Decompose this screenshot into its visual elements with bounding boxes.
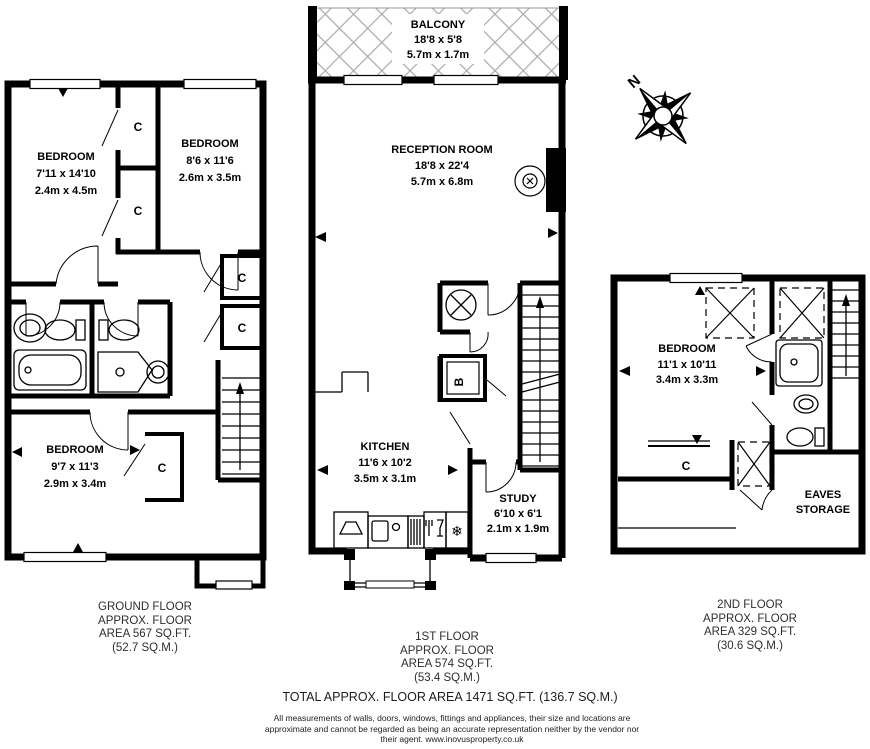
- chimney-breast: [546, 148, 566, 212]
- ground-bedroom-mid-imperial: 8'6 x 11'6: [186, 155, 233, 167]
- ground-bedroom-mid-metric: 2.6m x 3.5m: [179, 172, 242, 184]
- compass-rose: N: [601, 52, 713, 166]
- eaves-storage-line2: STORAGE: [796, 504, 850, 516]
- disclaimer-line1: All measurements of walls, doors, window…: [152, 713, 752, 724]
- skylights: [706, 288, 824, 486]
- ground-closet-2: C: [134, 204, 143, 218]
- ground-closet-3: C: [238, 271, 247, 285]
- second-closet: C: [682, 459, 691, 473]
- first-floor-plan: ❄ BALCONY 18'8 x 5'8 5.7m x 1.7m RECEPTI…: [308, 6, 568, 590]
- first-floor-area-line1: 1ST FLOOR: [347, 631, 547, 645]
- reception-metric: 5.7m x 6.8m: [411, 176, 474, 188]
- balcony-metric: 5.7m x 1.7m: [407, 49, 470, 61]
- second-bedroom-imperial: 11'1 x 10'11: [657, 359, 716, 371]
- kitchen-appliances: [334, 512, 468, 548]
- reception-name: RECEPTION ROOM: [391, 144, 492, 156]
- eaves-storage-line1: EAVES: [805, 489, 841, 501]
- second-window: [670, 274, 742, 283]
- kitchen-metric: 3.5m x 3.1m: [354, 473, 417, 485]
- second-doors: [740, 334, 772, 510]
- ground-closet-1: C: [134, 120, 143, 134]
- balcony-imperial: 18'8 x 5'8: [414, 34, 462, 46]
- ground-closet-5: C: [158, 461, 167, 475]
- wc-symbol: [446, 290, 476, 320]
- second-floor-area-line2: APPROX. FLOOR: [650, 613, 850, 627]
- ground-floor-area-line3: AREA 567 SQ.FT.: [45, 628, 245, 642]
- ground-room-labels: BEDROOM 7'11 x 14'10 2.4m x 4.5m BEDROOM…: [35, 120, 247, 490]
- floorplan-page: BEDROOM 7'11 x 14'10 2.4m x 4.5m BEDROOM…: [0, 0, 870, 749]
- ground-floor-plan: BEDROOM 7'11 x 14'10 2.4m x 4.5m BEDROOM…: [8, 80, 263, 590]
- study-name: STUDY: [499, 493, 537, 505]
- disclaimer-line3: their agent. www.inovusproperty.co.uk: [152, 734, 752, 745]
- second-floor-area-line3: AREA 329 SQ.FT.: [650, 626, 850, 640]
- ground-floor-area-label: GROUND FLOOR APPROX. FLOOR AREA 567 SQ.F…: [45, 601, 245, 655]
- kitchen-imperial: 11'6 x 10'2: [358, 457, 412, 469]
- study-imperial: 6'10 x 6'1: [494, 508, 542, 520]
- reception-imperial: 18'8 x 22'4: [415, 160, 470, 172]
- study-metric: 2.1m x 1.9m: [487, 523, 550, 535]
- second-floor-area-line4: (30.6 SQ.M.): [650, 640, 850, 654]
- ground-floor-area-line2: APPROX. FLOOR: [45, 615, 245, 629]
- balcony-name: BALCONY: [411, 19, 466, 31]
- ground-closet-4: C: [238, 321, 247, 335]
- ground-stairs: [222, 378, 261, 474]
- ground-bedroom-front-imperial: 7'11 x 14'10: [36, 168, 96, 180]
- first-floor-area-line3: AREA 574 SQ.FT.: [347, 658, 547, 672]
- ground-floor-area-line4: (52.7 SQ.M.): [45, 642, 245, 656]
- ground-floor-area-line1: GROUND FLOOR: [45, 601, 245, 615]
- second-bedroom-metric: 3.4m x 3.3m: [656, 374, 719, 386]
- second-room-labels: BEDROOM 11'1 x 10'11 3.4m x 3.3m C EAVES…: [656, 343, 850, 516]
- second-bedroom-name: BEDROOM: [658, 343, 715, 355]
- first-stairs: [522, 295, 560, 466]
- disclaimer: All measurements of walls, doors, window…: [152, 713, 752, 745]
- second-stairs: [832, 290, 860, 378]
- ground-bedroom-front-metric: 2.4m x 4.5m: [35, 185, 98, 197]
- boiler-label: B: [452, 377, 466, 386]
- total-floor-area: TOTAL APPROX. FLOOR AREA 1471 SQ.FT. (13…: [30, 690, 870, 704]
- second-floor-plan: BEDROOM 11'1 x 10'11 3.4m x 3.3m C EAVES…: [614, 274, 862, 552]
- floorplan-canvas: BEDROOM 7'11 x 14'10 2.4m x 4.5m BEDROOM…: [0, 0, 870, 600]
- kitchen-name: KITCHEN: [361, 441, 410, 453]
- first-floor-area-line4: (53.4 SQ.M.): [347, 672, 547, 686]
- ground-bedroom-back-imperial: 9'7 x 11'3: [51, 461, 98, 473]
- first-floor-area-line2: APPROX. FLOOR: [347, 645, 547, 659]
- first-floor-area-label: 1ST FLOOR APPROX. FLOOR AREA 574 SQ.FT. …: [347, 631, 547, 685]
- ground-bedroom-mid-name: BEDROOM: [181, 138, 238, 150]
- fridge-snowflake-icon: ❄: [451, 523, 463, 539]
- ground-bedroom-back-name: BEDROOM: [46, 444, 103, 456]
- second-bathroom-fixtures: [776, 340, 824, 446]
- kitchen-worktop-step: [312, 372, 368, 392]
- second-floor-area-line1: 2ND FLOOR: [650, 599, 850, 613]
- bay-window: [344, 549, 436, 590]
- ground-bedroom-back-metric: 2.9m x 3.4m: [44, 478, 107, 490]
- second-floor-area-label: 2ND FLOOR APPROX. FLOOR AREA 329 SQ.FT. …: [650, 599, 850, 653]
- disclaimer-line2: approximate and cannot be regarded as be…: [152, 724, 752, 735]
- ground-bedroom-front-name: BEDROOM: [37, 151, 94, 163]
- flue-symbol: [515, 166, 545, 196]
